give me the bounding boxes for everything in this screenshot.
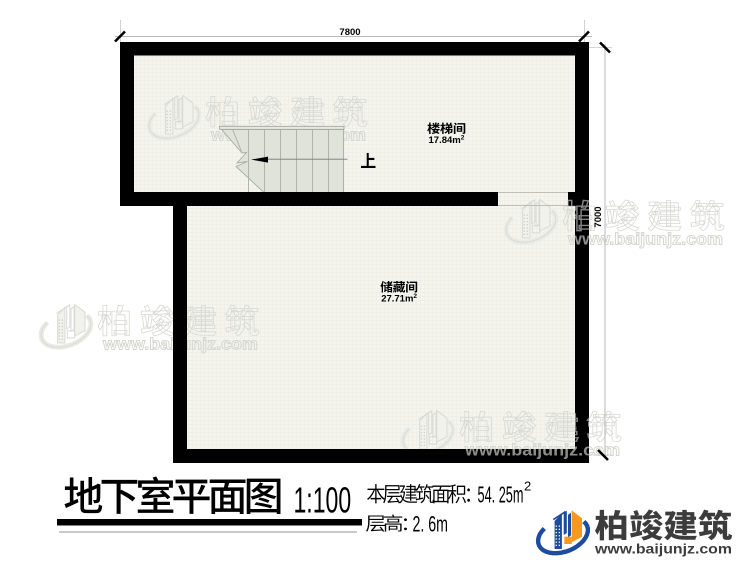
svg-text:2: 2 — [524, 479, 531, 494]
svg-text:2. 6m: 2. 6m — [413, 512, 449, 537]
svg-text:17.84m2: 17.84m2 — [429, 134, 465, 146]
svg-text:54. 25m: 54. 25m — [478, 482, 524, 508]
svg-text:7000: 7000 — [593, 206, 604, 227]
svg-text:www.baijunjz.com: www.baijunjz.com — [594, 542, 732, 557]
svg-text:27.71m2: 27.71m2 — [381, 293, 417, 305]
svg-text:1:100: 1:100 — [294, 482, 352, 521]
svg-text:7800: 7800 — [339, 27, 360, 38]
